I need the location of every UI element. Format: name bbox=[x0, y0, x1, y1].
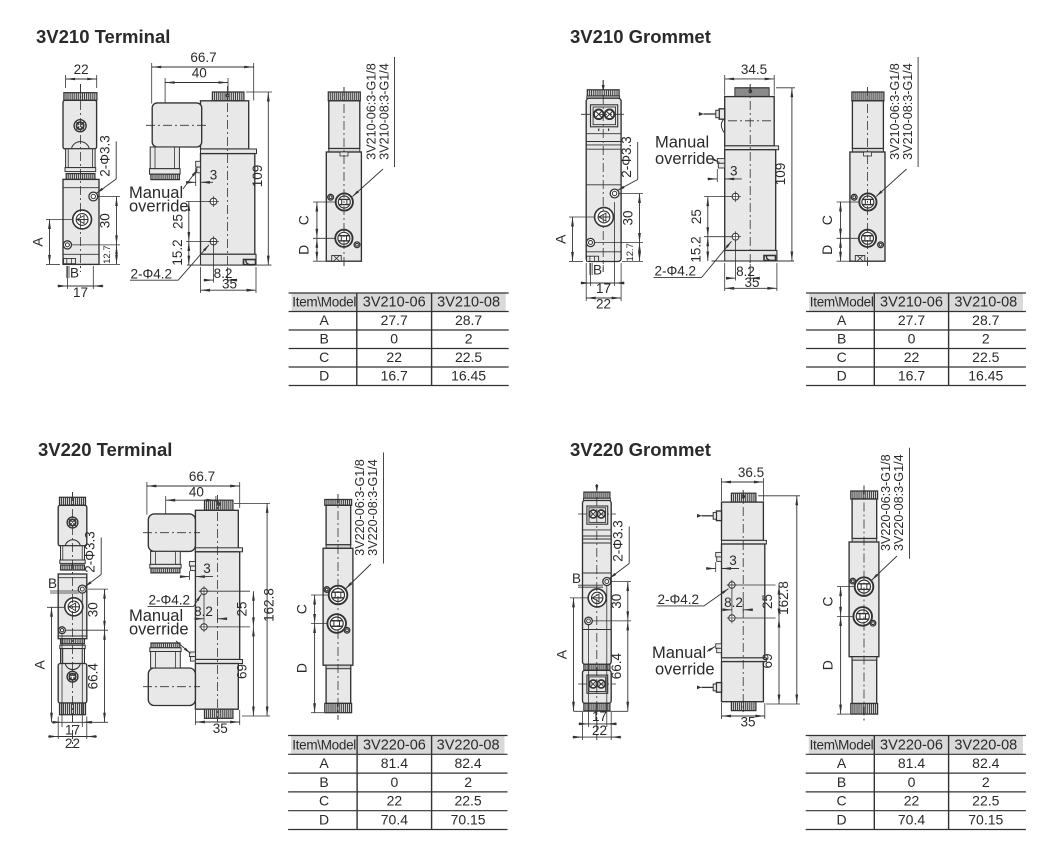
svg-text:2-Φ4.2: 2-Φ4.2 bbox=[131, 266, 173, 281]
svg-text:17: 17 bbox=[73, 285, 88, 300]
svg-text:25: 25 bbox=[235, 601, 250, 616]
svg-text:C: C bbox=[836, 793, 846, 809]
svg-text:22: 22 bbox=[65, 736, 80, 751]
svg-text:28.7: 28.7 bbox=[972, 312, 999, 328]
svg-text:81.4: 81.4 bbox=[898, 755, 925, 771]
svg-text:35: 35 bbox=[222, 277, 237, 292]
svg-text:22: 22 bbox=[592, 723, 607, 738]
svg-text:66.7: 66.7 bbox=[189, 469, 215, 484]
svg-text:C: C bbox=[837, 349, 847, 365]
svg-text:3V210 Grommet: 3V210 Grommet bbox=[570, 26, 711, 47]
svg-text:70.4: 70.4 bbox=[381, 812, 408, 828]
svg-text:A: A bbox=[553, 234, 569, 244]
svg-text:A: A bbox=[319, 755, 329, 771]
svg-text:C: C bbox=[296, 215, 312, 225]
svg-text:22: 22 bbox=[904, 793, 920, 809]
svg-text:25: 25 bbox=[760, 594, 775, 609]
svg-text:2-Φ3.3: 2-Φ3.3 bbox=[611, 520, 626, 562]
svg-text:A: A bbox=[554, 649, 570, 659]
svg-text:B: B bbox=[837, 331, 846, 347]
svg-text:3V220-06: 3V220-06 bbox=[880, 737, 943, 753]
svg-text:2-Φ3.3: 2-Φ3.3 bbox=[98, 135, 113, 177]
svg-text:A: A bbox=[837, 312, 847, 328]
svg-text:B: B bbox=[319, 774, 328, 790]
svg-text:30: 30 bbox=[609, 594, 624, 609]
svg-text:162.8: 162.8 bbox=[262, 588, 277, 622]
svg-text:3V210-08: 3V210-08 bbox=[437, 295, 500, 311]
svg-text:69: 69 bbox=[760, 653, 775, 668]
svg-text:Manual: Manual bbox=[652, 644, 706, 662]
svg-text:81.4: 81.4 bbox=[381, 755, 408, 771]
svg-text:3V220-08:3-G1/4: 3V220-08:3-G1/4 bbox=[366, 459, 380, 556]
svg-text:Item\Model: Item\Model bbox=[810, 295, 874, 310]
svg-text:25: 25 bbox=[170, 214, 185, 229]
svg-text:C: C bbox=[820, 596, 836, 606]
svg-text:3V210-08:3-G1/4: 3V210-08:3-G1/4 bbox=[378, 63, 392, 160]
svg-text:82.4: 82.4 bbox=[454, 755, 481, 771]
svg-text:27.7: 27.7 bbox=[381, 312, 408, 328]
svg-text:B: B bbox=[593, 263, 602, 278]
svg-text:109: 109 bbox=[773, 163, 788, 186]
svg-text:3V220 Grommet: 3V220 Grommet bbox=[570, 439, 711, 460]
svg-text:12.7: 12.7 bbox=[625, 243, 636, 261]
svg-text:Item\Model: Item\Model bbox=[292, 737, 356, 752]
svg-text:8.2: 8.2 bbox=[724, 595, 743, 610]
svg-text:3V210 Terminal: 3V210 Terminal bbox=[36, 26, 170, 47]
svg-text:2-Φ4.2: 2-Φ4.2 bbox=[149, 593, 191, 608]
svg-text:162.8: 162.8 bbox=[776, 581, 791, 615]
svg-text:override: override bbox=[129, 198, 189, 216]
svg-text:16.7: 16.7 bbox=[898, 368, 925, 384]
svg-text:30: 30 bbox=[621, 210, 636, 225]
svg-text:22: 22 bbox=[596, 297, 611, 312]
svg-text:16.45: 16.45 bbox=[968, 368, 1003, 384]
svg-text:Item\Model: Item\Model bbox=[292, 295, 356, 310]
svg-text:22: 22 bbox=[904, 349, 920, 365]
svg-text:3V220-08:3-G1/4: 3V220-08:3-G1/4 bbox=[892, 454, 906, 551]
svg-text:3V210-08:3-G1/4: 3V210-08:3-G1/4 bbox=[901, 63, 915, 160]
svg-text:17: 17 bbox=[596, 281, 611, 296]
svg-text:15.2: 15.2 bbox=[170, 239, 185, 265]
svg-text:C: C bbox=[294, 604, 310, 614]
svg-text:D: D bbox=[836, 812, 846, 828]
svg-text:16.45: 16.45 bbox=[451, 368, 486, 384]
svg-text:A: A bbox=[320, 312, 330, 328]
svg-text:22.5: 22.5 bbox=[455, 349, 482, 365]
svg-text:35: 35 bbox=[213, 721, 228, 736]
svg-text:3: 3 bbox=[729, 553, 737, 568]
svg-text:17: 17 bbox=[592, 709, 607, 724]
svg-text:15.2: 15.2 bbox=[689, 236, 704, 262]
svg-text:D: D bbox=[319, 812, 329, 828]
svg-text:3V210-06:3-G1/8: 3V210-06:3-G1/8 bbox=[365, 63, 379, 160]
svg-text:0: 0 bbox=[390, 331, 398, 347]
svg-text:12.7: 12.7 bbox=[102, 245, 113, 264]
svg-text:3V210-06: 3V210-06 bbox=[363, 295, 426, 311]
svg-text:3V220-08: 3V220-08 bbox=[437, 737, 500, 753]
svg-text:A: A bbox=[30, 237, 46, 247]
svg-text:2: 2 bbox=[465, 331, 473, 347]
svg-text:3V210-06: 3V210-06 bbox=[880, 295, 943, 311]
svg-text:override: override bbox=[655, 150, 715, 168]
svg-text:27.7: 27.7 bbox=[898, 312, 925, 328]
svg-text:B: B bbox=[837, 774, 846, 790]
svg-text:30: 30 bbox=[86, 602, 101, 617]
svg-text:34.5: 34.5 bbox=[741, 62, 767, 77]
svg-text:2-Φ4.2: 2-Φ4.2 bbox=[655, 264, 697, 279]
svg-text:0: 0 bbox=[391, 774, 399, 790]
svg-text:22.5: 22.5 bbox=[972, 793, 999, 809]
svg-text:D: D bbox=[820, 660, 836, 670]
svg-text:0: 0 bbox=[908, 331, 916, 347]
svg-text:109: 109 bbox=[250, 165, 265, 188]
svg-text:3: 3 bbox=[203, 561, 211, 576]
svg-text:66.7: 66.7 bbox=[190, 50, 216, 65]
svg-text:3V220-06:3-G1/8: 3V220-06:3-G1/8 bbox=[353, 459, 367, 556]
svg-text:8.2: 8.2 bbox=[194, 604, 213, 619]
svg-text:2-Φ4.2: 2-Φ4.2 bbox=[658, 592, 700, 607]
svg-text:3V220 Terminal: 3V220 Terminal bbox=[38, 439, 172, 460]
svg-text:22: 22 bbox=[74, 62, 89, 77]
svg-text:Manual: Manual bbox=[655, 134, 709, 152]
svg-text:28.7: 28.7 bbox=[455, 312, 482, 328]
svg-text:40: 40 bbox=[189, 485, 204, 500]
svg-text:3: 3 bbox=[730, 164, 738, 179]
svg-text:3: 3 bbox=[210, 168, 218, 183]
svg-text:3V220-08: 3V220-08 bbox=[954, 737, 1017, 753]
svg-text:3V220-06:3-G1/8: 3V220-06:3-G1/8 bbox=[879, 454, 893, 551]
svg-text:2: 2 bbox=[982, 774, 990, 790]
svg-text:2-Φ3.3: 2-Φ3.3 bbox=[83, 531, 98, 573]
svg-text:C: C bbox=[819, 215, 835, 225]
svg-text:3V220-06: 3V220-06 bbox=[363, 737, 426, 753]
svg-text:B: B bbox=[572, 571, 581, 586]
svg-text:70.15: 70.15 bbox=[451, 812, 486, 828]
svg-text:D: D bbox=[296, 245, 312, 255]
svg-text:B: B bbox=[320, 331, 329, 347]
svg-text:A: A bbox=[32, 659, 48, 669]
svg-text:C: C bbox=[319, 793, 329, 809]
svg-text:69: 69 bbox=[235, 664, 250, 679]
svg-text:22.5: 22.5 bbox=[972, 349, 999, 365]
svg-text:66.4: 66.4 bbox=[609, 652, 624, 679]
svg-text:35: 35 bbox=[740, 715, 755, 730]
svg-text:3V210-06:3-G1/8: 3V210-06:3-G1/8 bbox=[888, 63, 902, 160]
svg-text:override: override bbox=[655, 661, 715, 679]
svg-text:66.4: 66.4 bbox=[86, 663, 101, 690]
svg-text:22.5: 22.5 bbox=[454, 793, 481, 809]
svg-text:C: C bbox=[319, 349, 329, 365]
svg-text:override: override bbox=[129, 621, 189, 639]
svg-text:0: 0 bbox=[908, 774, 916, 790]
svg-text:70.4: 70.4 bbox=[898, 812, 925, 828]
svg-text:2: 2 bbox=[464, 774, 472, 790]
svg-text:82.4: 82.4 bbox=[972, 755, 999, 771]
svg-text:3V210-08: 3V210-08 bbox=[954, 295, 1017, 311]
svg-text:22: 22 bbox=[387, 793, 403, 809]
svg-text:2: 2 bbox=[982, 331, 990, 347]
svg-text:35: 35 bbox=[744, 275, 759, 290]
svg-text:30: 30 bbox=[98, 213, 113, 228]
svg-text:B: B bbox=[48, 576, 57, 591]
svg-text:B: B bbox=[70, 266, 79, 281]
svg-text:25: 25 bbox=[689, 209, 704, 224]
svg-text:D: D bbox=[837, 368, 847, 384]
svg-text:40: 40 bbox=[192, 66, 207, 81]
svg-text:36.5: 36.5 bbox=[738, 465, 764, 480]
svg-text:A: A bbox=[837, 755, 847, 771]
svg-text:16.7: 16.7 bbox=[381, 368, 408, 384]
svg-text:D: D bbox=[294, 663, 310, 673]
svg-text:70.15: 70.15 bbox=[968, 812, 1003, 828]
svg-text:Item\Model: Item\Model bbox=[810, 737, 874, 752]
svg-text:D: D bbox=[319, 368, 329, 384]
svg-text:D: D bbox=[819, 245, 835, 255]
svg-text:22: 22 bbox=[386, 349, 402, 365]
svg-text:2-Φ3.3: 2-Φ3.3 bbox=[619, 136, 634, 178]
